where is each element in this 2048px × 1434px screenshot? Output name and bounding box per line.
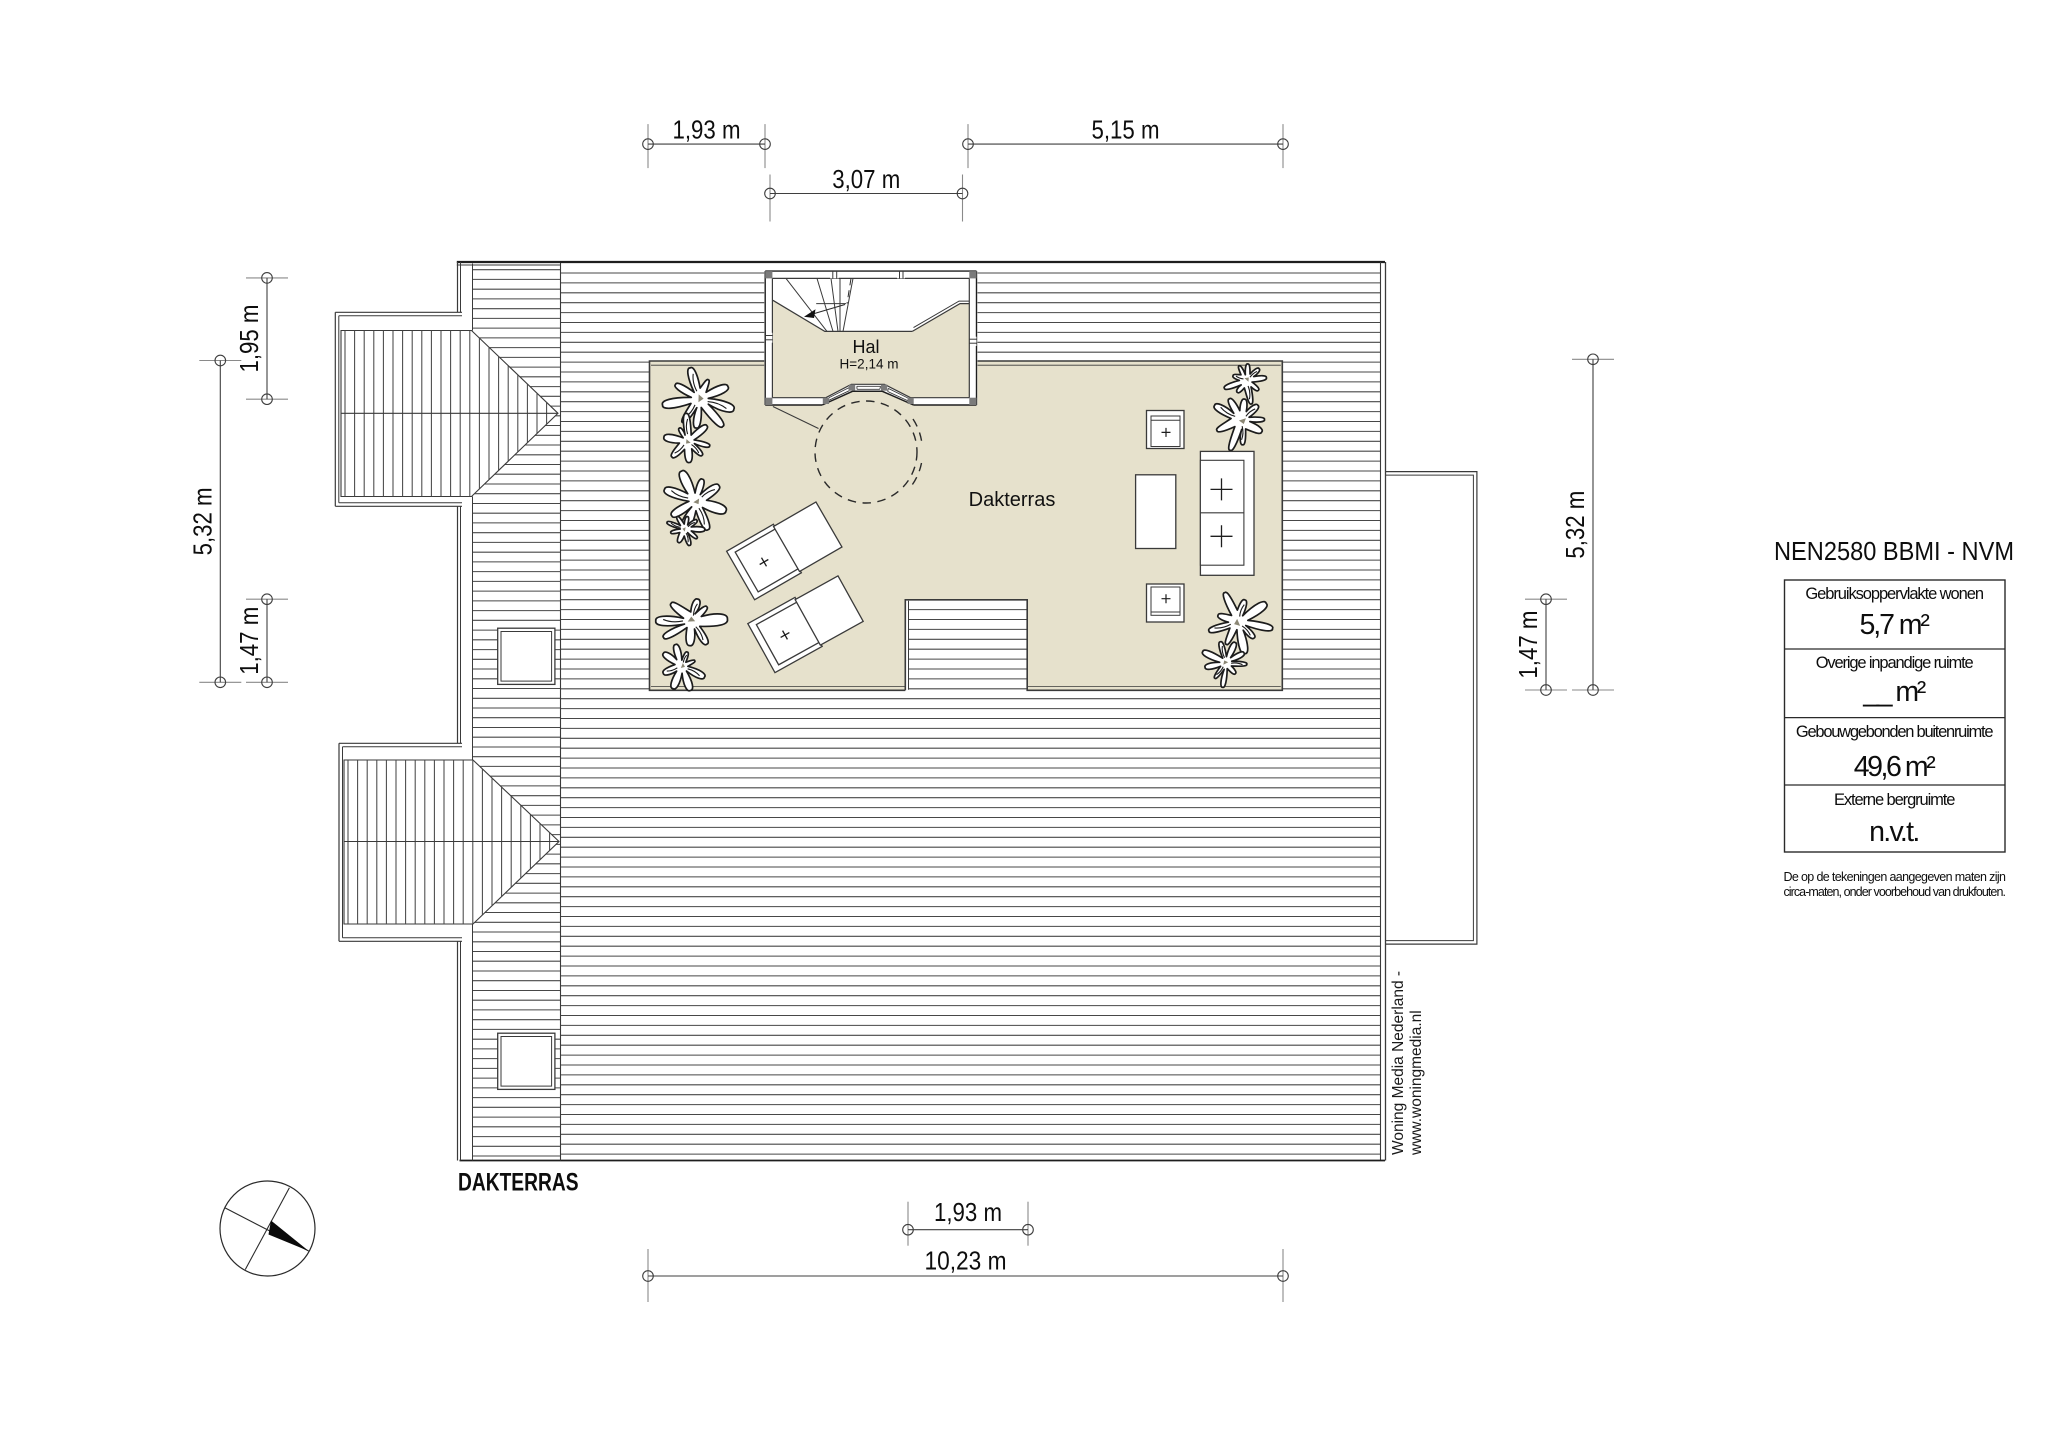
svg-text:circa-maten, onder voorbehoud: circa-maten, onder voorbehoud van drukfo… xyxy=(1783,885,2006,899)
svg-text:Gebruiksoppervlakte wonen: Gebruiksoppervlakte wonen xyxy=(1805,585,1984,603)
svg-text:1,95 m: 1,95 m xyxy=(234,305,264,373)
svg-text:NEN2580 BBMI - NVM: NEN2580 BBMI - NVM xyxy=(1774,536,2014,566)
svg-text:Externe bergruimte: Externe bergruimte xyxy=(1834,791,1956,809)
svg-text:1,47 m: 1,47 m xyxy=(234,607,264,675)
svg-text:Woning Media Nederland -: Woning Media Nederland - xyxy=(1390,971,1407,1155)
svg-text:1,93 m: 1,93 m xyxy=(673,115,741,145)
svg-text:Hal: Hal xyxy=(852,337,879,357)
svg-text:5,15 m: 5,15 m xyxy=(1092,115,1160,145)
svg-text:1,47 m: 1,47 m xyxy=(1513,611,1543,679)
svg-text:Overige inpandige ruimte: Overige inpandige ruimte xyxy=(1816,654,1974,672)
svg-text:1,93 m: 1,93 m xyxy=(934,1197,1002,1227)
svg-text:5,7 m²: 5,7 m² xyxy=(1860,609,1930,641)
svg-text:3,07 m: 3,07 m xyxy=(832,164,900,194)
svg-text:Dakterras: Dakterras xyxy=(969,489,1056,511)
svg-text:DAKTERRAS: DAKTERRAS xyxy=(458,1169,579,1197)
svg-text:10,23 m: 10,23 m xyxy=(925,1246,1007,1276)
svg-text:H=2,14 m: H=2,14 m xyxy=(840,357,899,372)
svg-text:www.woningmedia.nl: www.woningmedia.nl xyxy=(1408,1010,1425,1156)
svg-text:5,32 m: 5,32 m xyxy=(187,487,217,555)
svg-text:5,32 m: 5,32 m xyxy=(1560,491,1590,559)
svg-text:49,6 m²: 49,6 m² xyxy=(1854,751,1936,783)
svg-text:__ m²: __ m² xyxy=(1862,676,1926,708)
svg-text:Gebouwgebonden buitenruimte: Gebouwgebonden buitenruimte xyxy=(1796,723,1994,741)
svg-text:n.v.t.: n.v.t. xyxy=(1869,816,1920,848)
svg-text:De op de tekeningen aangegeven: De op de tekeningen aangegeven maten zij… xyxy=(1783,870,2006,884)
